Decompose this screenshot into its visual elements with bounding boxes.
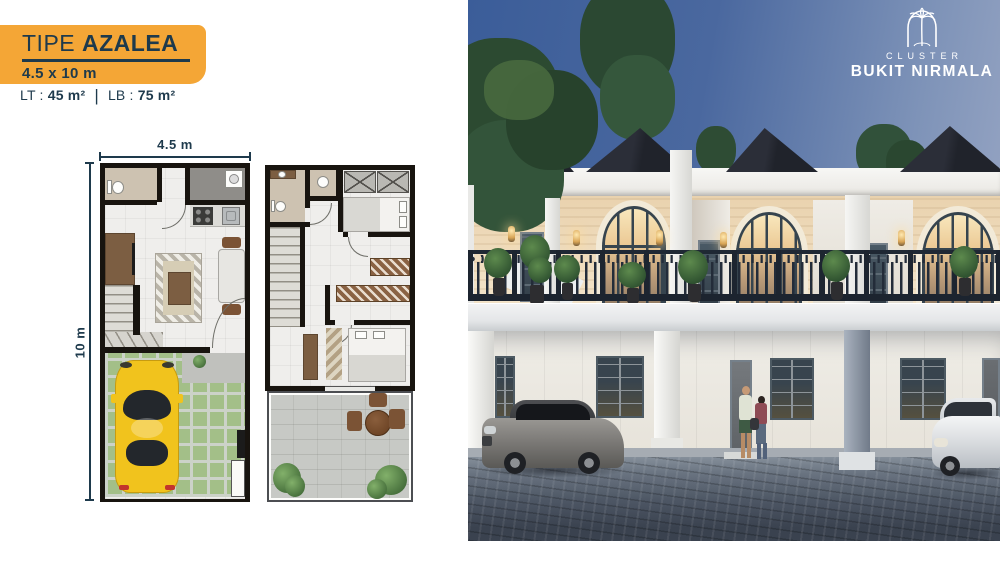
plant-pot <box>493 278 505 296</box>
wall-sconce-lamp <box>898 230 905 246</box>
wall-segment <box>325 285 330 325</box>
upper-rooms <box>265 165 415 391</box>
door-arc <box>162 205 186 229</box>
type-badge: TIPE AZALEA 4.5 x 10 m <box>0 25 206 84</box>
wall-segment <box>368 232 410 237</box>
woman-leg <box>763 443 767 459</box>
column <box>654 331 680 441</box>
coffee-table <box>168 272 191 305</box>
balcony-plant <box>676 250 712 308</box>
washer-drum <box>229 174 239 184</box>
lb-label: LB : <box>108 87 134 103</box>
bed-blanket <box>349 355 405 381</box>
area-separator: | <box>94 86 99 106</box>
type-title: TIPE AZALEA <box>22 29 206 57</box>
width-dimension-line <box>100 156 250 158</box>
balcony-plant <box>948 246 982 304</box>
plant-leaves <box>528 257 552 283</box>
pillow <box>373 331 385 339</box>
wardrobe-box <box>377 171 409 193</box>
wall-segment <box>300 227 305 327</box>
plant-pot <box>562 283 573 300</box>
plant-leaves <box>554 255 580 283</box>
car-wheel <box>578 452 600 474</box>
lt-label: LT : <box>20 87 44 103</box>
brand-name: BUKIT NIRMALA <box>842 63 1000 81</box>
handbag <box>750 418 759 430</box>
terrace-plant <box>285 475 305 497</box>
pillow <box>399 201 407 213</box>
car-mirror <box>111 394 117 403</box>
car-headlight <box>934 438 948 447</box>
door-arc <box>310 203 332 225</box>
ground-floor-plan <box>100 163 250 502</box>
balcony-plant <box>616 262 648 308</box>
balcony-plant <box>820 250 854 308</box>
terrace <box>267 391 413 502</box>
plant-leaves <box>484 248 512 278</box>
cluster-label: CLUSTER <box>842 51 1000 61</box>
meter-box <box>237 430 245 458</box>
dim-tick <box>85 162 94 164</box>
wall-segment <box>105 200 157 205</box>
car-mirror <box>177 394 183 403</box>
render-photo: CLUSTER BUKIT NIRMALA <box>468 0 1000 541</box>
plant-leaves <box>822 250 850 282</box>
balcony-plant <box>520 235 554 307</box>
outdoor-chair <box>389 409 405 429</box>
staircase <box>105 285 133 335</box>
palm-tree-arch-icon <box>904 6 940 48</box>
plant-pot <box>530 285 544 305</box>
car-window <box>516 404 590 420</box>
concrete-path <box>182 353 245 383</box>
terrace-plant <box>367 479 387 499</box>
toilet-bowl <box>112 181 124 194</box>
man-shirt <box>739 395 752 421</box>
tree <box>484 60 554 120</box>
kitchen-sink <box>222 207 240 225</box>
car-windshield <box>123 390 171 420</box>
potted-plant <box>193 355 206 368</box>
tv-cabinet <box>105 233 135 285</box>
type-label: TIPE <box>22 30 75 56</box>
wall-segment <box>310 196 341 201</box>
man-head <box>742 386 750 395</box>
bed-1 <box>343 197 410 232</box>
car-roof-highlight <box>131 418 163 438</box>
lb-value: 75 m² <box>138 87 176 103</box>
badge-divider <box>22 59 190 62</box>
size-text: 4.5 x 10 m <box>22 65 206 82</box>
couple-figures <box>738 386 774 464</box>
woman-leg <box>757 443 761 459</box>
wall-sconce-lamp <box>573 230 580 246</box>
wall-segment <box>133 285 140 335</box>
rug <box>155 253 202 323</box>
outdoor-table <box>365 410 391 436</box>
dim-tick <box>99 152 101 161</box>
stove <box>193 207 213 225</box>
height-dimension-line <box>89 163 91 501</box>
pillow <box>355 331 367 339</box>
white-car <box>932 398 1000 476</box>
entry-door-arc <box>212 298 245 348</box>
wardrobe-hatched <box>370 258 410 276</box>
type-name: AZALEA <box>82 30 178 56</box>
car-rear-glass <box>126 440 168 466</box>
car-headlight <box>162 362 174 368</box>
width-dimension-label: 4.5 m <box>100 137 250 152</box>
floorplan-panel: TIPE AZALEA 4.5 x 10 m LT : 45 m²|LB : 7… <box>0 0 460 563</box>
entry-porch <box>231 460 245 497</box>
wall-sconce-lamp <box>720 232 727 248</box>
wardrobe-box <box>344 171 376 193</box>
pillar-base <box>839 452 875 470</box>
car-headlight <box>120 362 132 368</box>
tv <box>132 243 135 275</box>
wall-segment <box>157 168 162 202</box>
door-arc <box>348 237 368 257</box>
plant-leaves <box>618 262 646 288</box>
balcony-plant <box>482 248 516 308</box>
car-wheel <box>940 456 960 476</box>
balcony-fascia <box>468 303 1000 332</box>
tree <box>696 126 736 174</box>
plant-pot <box>688 284 701 302</box>
flyer-canvas: TIPE AZALEA 4.5 x 10 m LT : 45 m²|LB : 7… <box>0 0 1000 563</box>
plant-leaves <box>678 250 708 284</box>
upper-floor-plan <box>265 165 415 502</box>
plant-pot <box>627 288 639 304</box>
wall-sconce-lamp <box>508 226 515 242</box>
wall-segment <box>185 168 190 200</box>
wall-sconce-lamp <box>656 230 663 246</box>
dining-chair <box>222 237 241 248</box>
washing-machine <box>225 170 243 188</box>
outdoor-chair <box>369 393 387 407</box>
dim-tick <box>249 152 251 161</box>
sedan-car <box>482 400 624 474</box>
bedroom-rug <box>326 328 342 380</box>
ground-window <box>770 358 814 420</box>
lt-value: 45 m² <box>48 87 86 103</box>
car-taillight <box>165 485 175 490</box>
wardrobe-hatched <box>336 285 410 302</box>
foreground-pillar <box>844 330 870 458</box>
balcony-plant <box>552 255 582 307</box>
staircase-2 <box>270 227 300 327</box>
pillow <box>399 216 407 228</box>
plant-pot <box>831 282 843 300</box>
wall-segment <box>354 320 410 325</box>
bed-2 <box>348 328 406 382</box>
toilet-bowl <box>275 201 286 212</box>
vanity-sink <box>278 171 286 178</box>
dim-tick <box>85 499 94 501</box>
dining-table <box>218 249 245 303</box>
height-dimension-label: 10 m <box>73 319 88 367</box>
car-wheel <box>504 452 526 474</box>
area-info: LT : 45 m²|LB : 75 m² <box>20 86 175 106</box>
desk <box>303 334 318 380</box>
plant-pot <box>959 278 971 296</box>
man-leg <box>741 433 745 458</box>
nook-sink <box>317 176 329 188</box>
brand-logo: CLUSTER BUKIT NIRMALA <box>842 6 1000 81</box>
car-top-view <box>115 360 179 493</box>
car-taillight <box>119 485 129 490</box>
outdoor-chair <box>347 411 362 431</box>
car-headlight <box>484 426 496 434</box>
tree <box>600 55 675 140</box>
wardrobe <box>343 170 410 194</box>
man-leg <box>747 433 751 458</box>
car-grille <box>482 436 492 446</box>
bed-blanket <box>344 198 380 231</box>
plant-leaves <box>950 246 978 278</box>
sink-basin <box>226 211 236 221</box>
